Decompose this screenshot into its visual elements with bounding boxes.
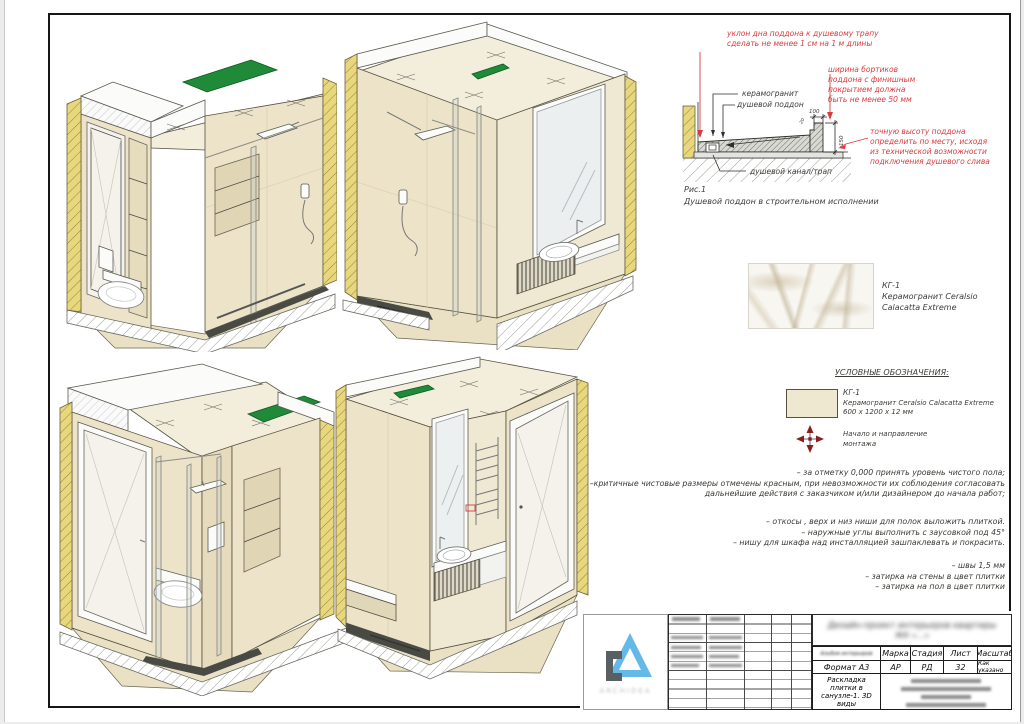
green-accent-strip <box>183 60 277 92</box>
scale-value: Как указано <box>977 660 1012 674</box>
shower-mixer <box>399 190 407 204</box>
archidea-logo <box>600 629 652 685</box>
logo-box: ARCHIDEA <box>583 614 668 710</box>
legend-tile-swatch <box>786 389 838 418</box>
stadia-header: Стадия <box>910 646 944 661</box>
note-slope: уклон дна поддона к душевому трапу сдела… <box>727 29 879 49</box>
dim-100: 100 <box>809 109 820 115</box>
legend-tile-code: КГ-1 <box>843 388 860 398</box>
axon-view-toilet-shower <box>55 18 337 352</box>
curb-section <box>810 123 823 152</box>
label-ceramic: керамогранит <box>742 89 798 99</box>
wall-cut-right <box>625 76 636 276</box>
figure-caption: Душевой поддон в строительном исполнении <box>684 197 879 207</box>
notes-paragraph-2: – откосы , верх и низ ниши для полок выл… <box>585 517 1005 549</box>
wall-cut-left <box>67 98 81 312</box>
material-code: КГ-1 <box>882 281 900 291</box>
material-name2: Calacatta Extreme <box>882 303 956 313</box>
album-header: Альбом интерьеров <box>812 646 881 661</box>
label-drain: душевой канал/трап <box>750 167 832 177</box>
wall-cut-left <box>336 385 346 627</box>
stamp-right: Дизайн-проект интерьеров квартиры ЖК «..… <box>812 614 1012 710</box>
shower-mixer <box>301 184 309 198</box>
stadia-value: РД <box>910 660 944 674</box>
wall-cut-left <box>60 402 72 630</box>
axon-view-shower-vanity <box>337 12 642 350</box>
sheet-title: Раскладка плитки в санузле-1. 3D виды <box>812 673 881 710</box>
door-handle <box>519 505 522 508</box>
drawing-sheet: уклон дна поддона к душевому трапу сдела… <box>0 0 1024 724</box>
logo-wordmark: ARCHIDEA <box>599 687 651 695</box>
flush-panel <box>99 246 113 272</box>
label-pan: душевой поддон <box>737 100 804 110</box>
wall-cut-right <box>323 78 337 286</box>
note-pan-height: точную высоту поддона определить по мест… <box>870 127 990 167</box>
marka-value: АР <box>880 660 911 674</box>
notes-paragraph-1: – за отметку 0,000 принять уровень чисто… <box>585 468 1005 500</box>
note-curb-width: ширина бортиков поддона с финишным покры… <box>828 65 915 105</box>
title-block: ARCHIDEA Дизайн-проект интерьеров кварти… <box>580 611 1014 713</box>
project-subtitle: ЖК «...» <box>895 631 929 640</box>
niche-shelves <box>244 468 280 572</box>
drain-channel <box>706 143 719 152</box>
legend-mount-label: Начало и направление монтажа <box>843 429 927 449</box>
material-name: Керамогранит Ceralsio <box>882 292 978 302</box>
revision-table <box>668 614 812 710</box>
marka-header: Марка <box>880 646 911 661</box>
wall-section <box>683 106 695 158</box>
legend-tile-size: 600 х 1200 х 12 мм <box>843 407 913 417</box>
list-header: Лист <box>943 646 978 661</box>
list-value: 32 <box>943 660 978 674</box>
mounting-direction-icon <box>794 423 826 455</box>
format-value: Формат А3 <box>812 660 881 674</box>
marble-sample-image <box>748 263 874 329</box>
project-title: Дизайн-проект интерьеров квартиры <box>828 621 997 631</box>
axon-view-entry-toilet <box>52 362 372 696</box>
figure-number: Рис.1 <box>684 185 706 195</box>
signature-area <box>880 673 1012 710</box>
notes-paragraph-3: – швы 1,5 мм – затирка на стены в цвет п… <box>585 561 1005 593</box>
project-title-cell: Дизайн-проект интерьеров квартиры ЖК «..… <box>812 614 1012 646</box>
wall-cut-left <box>345 54 357 300</box>
legend-title: УСЛОВНЫЕ ОБОЗНАЧЕНИЯ: <box>835 368 949 378</box>
scale-header: Масштаб <box>977 646 1012 661</box>
dim-150: 150 <box>839 136 845 147</box>
